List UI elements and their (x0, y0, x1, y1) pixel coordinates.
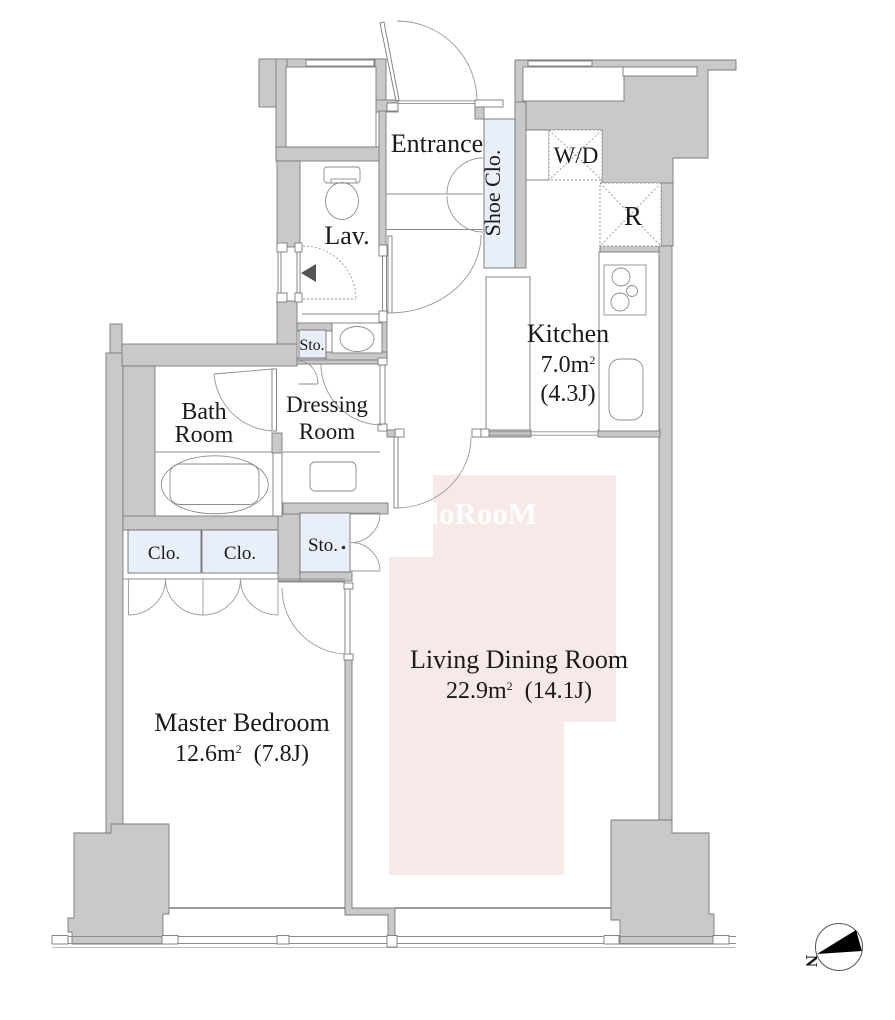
svg-text:Master Bedroom: Master Bedroom (154, 708, 329, 737)
svg-text:22.9m2 (14.1J): 22.9m2 (14.1J) (446, 678, 592, 704)
svg-text:Sto.: Sto. (308, 535, 338, 556)
svg-text:Shoe Clo.: Shoe Clo. (480, 150, 505, 237)
svg-text:(4.3J): (4.3J) (540, 381, 595, 407)
svg-text:Entrance: Entrance (391, 129, 483, 158)
svg-text:Room: Room (299, 419, 355, 444)
svg-text:Clo.: Clo. (224, 543, 256, 564)
svg-text:Sto.: Sto. (299, 337, 324, 354)
svg-text:W/D: W/D (554, 143, 599, 168)
svg-text:Clo.: Clo. (148, 543, 180, 564)
svg-text:Kitchen: Kitchen (527, 319, 609, 348)
svg-text:MadoRooM: MadoRooM (377, 496, 537, 531)
svg-text:R: R (624, 201, 642, 231)
svg-text:12.6m2 (7.8J): 12.6m2 (7.8J) (175, 741, 309, 767)
svg-text:7.0m2: 7.0m2 (541, 352, 596, 378)
svg-text:Living Dining Room: Living Dining Room (410, 645, 628, 674)
svg-text:Lav.: Lav. (324, 221, 369, 250)
svg-text:Room: Room (175, 422, 234, 448)
svg-text:Dressing: Dressing (286, 392, 368, 417)
svg-text:N: N (802, 955, 821, 968)
